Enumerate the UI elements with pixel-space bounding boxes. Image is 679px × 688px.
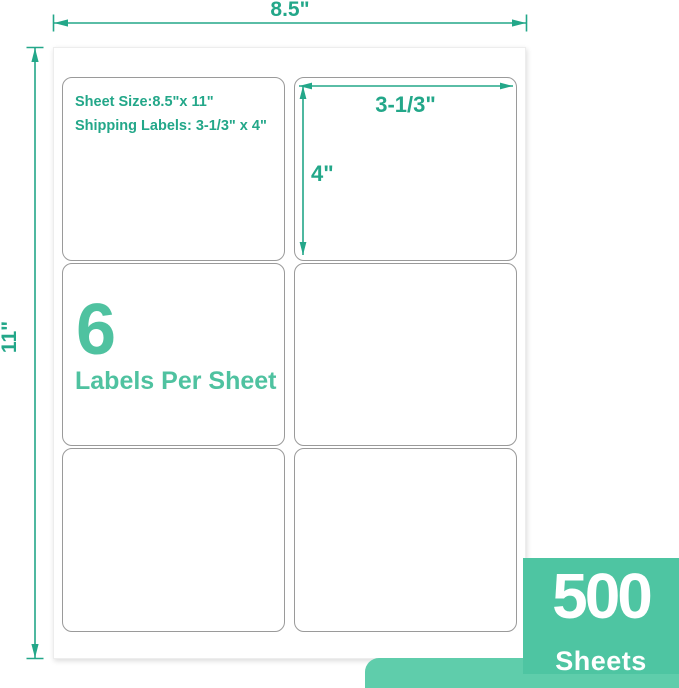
sheet-height-value: 11" xyxy=(0,315,20,359)
label-width-value: 3-1/3" xyxy=(295,93,516,117)
label-cell-blank xyxy=(294,448,517,632)
product-diagram: 8.5" 11" Sheet Size:8.5"x 11" Shipping L… xyxy=(0,0,679,688)
label-cell-blank xyxy=(62,448,285,632)
label-cell-blank xyxy=(294,263,517,446)
label-cell-dimensions: 3-1/3" 4" xyxy=(294,77,517,261)
sheet-count-caption: Sheets xyxy=(523,647,679,675)
sheet-size-line1: Sheet Size:8.5"x 11" xyxy=(75,91,267,115)
sheet-count-badge: 500 Sheets xyxy=(523,558,679,674)
vertical-dimension-arrow-icon xyxy=(25,40,45,666)
labels-per-sheet-caption: Labels Per Sheet xyxy=(75,368,276,394)
label-cell-info: Sheet Size:8.5"x 11" Shipping Labels: 3-… xyxy=(62,77,285,261)
sheet-count-number: 500 xyxy=(523,566,679,626)
sheet-size-text: Sheet Size:8.5"x 11" Shipping Labels: 3-… xyxy=(75,91,267,138)
label-height-value: 4" xyxy=(311,162,334,186)
label-sheet: Sheet Size:8.5"x 11" Shipping Labels: 3-… xyxy=(53,47,526,659)
horizontal-dimension-arrow-icon xyxy=(45,13,535,33)
sheet-size-line2: Shipping Labels: 3-1/3" x 4" xyxy=(75,115,267,139)
labels-per-sheet-number: 6 xyxy=(76,294,116,366)
label-cell-count: 6 Labels Per Sheet xyxy=(62,263,285,446)
